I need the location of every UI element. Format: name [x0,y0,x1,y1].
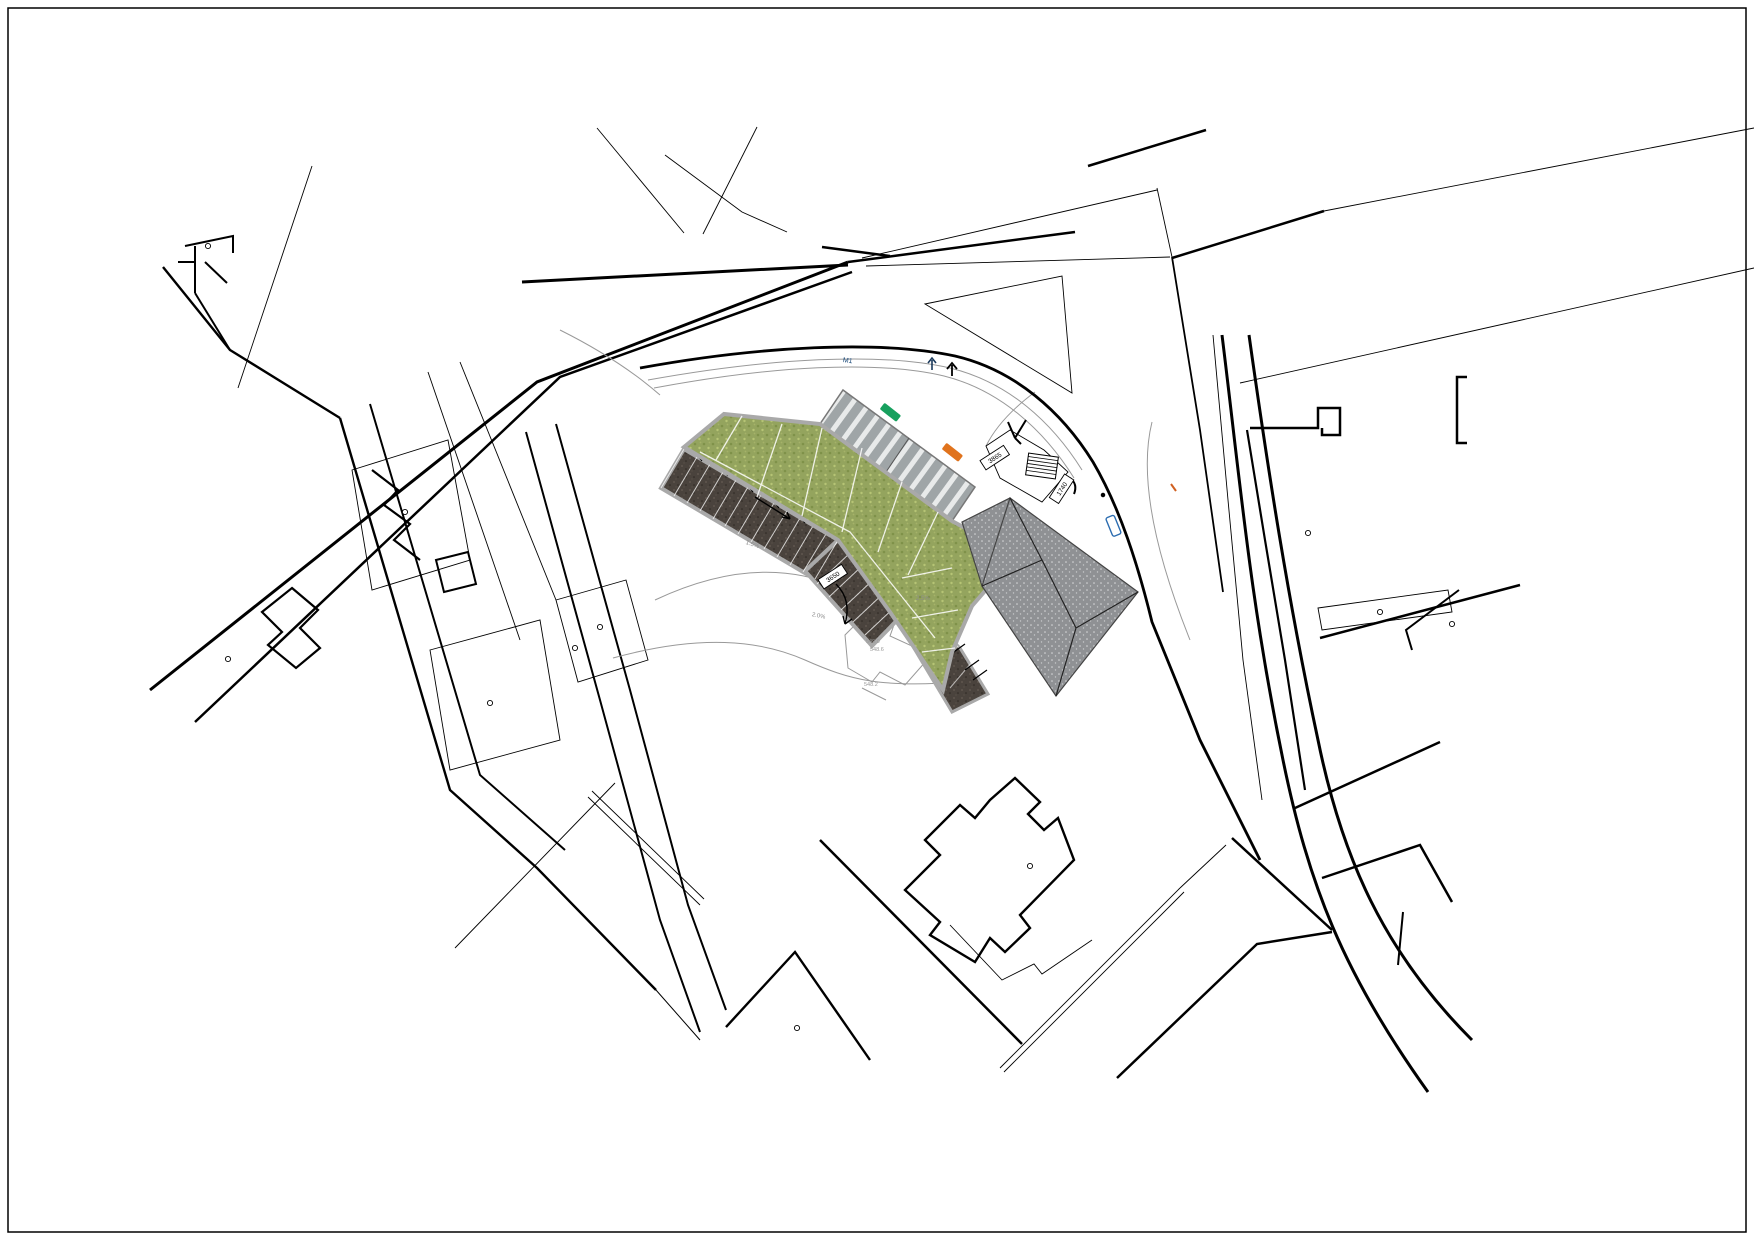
parcel-line [238,166,312,388]
survey-point [572,645,577,650]
site-plan-sheet: 3865 1740 3650 M1 1.5% 2.0% 2.5% 549.0 5… [0,0,1754,1240]
building-outline-stepped [905,778,1074,962]
parcel-line [428,372,520,640]
survey-point [794,1025,799,1030]
main-road-edge [1222,335,1428,1092]
road-edge [1088,130,1206,166]
survey-point [1027,863,1032,868]
site-plan-core: 3865 1740 3650 M1 1.5% 2.0% 2.5% 549.0 5… [640,347,1260,860]
road-edge [1320,585,1520,638]
parcel-line [950,925,1092,980]
parcel-outline [430,620,560,770]
road-edge [1172,211,1324,258]
orange-tick [1171,484,1176,491]
survey-point [402,509,407,514]
path-edge [1000,888,1180,1068]
parcel-line [866,257,1170,266]
boundary-line [1406,590,1459,650]
building-outline [262,588,320,668]
survey-point [1449,621,1454,626]
parcel-line [460,362,556,600]
bracket-symbol [1457,377,1467,443]
survey-point [597,624,602,629]
road-network [150,130,1520,1092]
parcel-line [703,127,757,234]
house-note: 549.0 [866,639,880,645]
road-edge [848,232,1075,262]
contour [1147,422,1190,640]
point-marker [1101,493,1105,497]
survey-point [205,243,210,248]
road-median [822,247,890,256]
road-edge [1117,932,1332,1078]
parcel-line [1180,845,1226,888]
survey-point [225,656,230,661]
parcel-line [1324,128,1754,211]
buildings [178,236,1340,1060]
traffic-island-parcel [925,276,1072,393]
survey-point [1377,609,1382,614]
road-edge [163,267,340,418]
boundary-line [1172,257,1223,592]
new-building-roof [962,498,1138,696]
survey-points [205,243,1454,1030]
boundary-line [820,840,1022,1044]
contour [613,642,960,684]
house-note: 548.6 [870,647,884,653]
survey-point [1305,530,1310,535]
parcel-line [862,190,1157,258]
road-mark-label: M1 [842,357,853,365]
building-cluster-northwest [178,236,233,350]
road-branch [1295,742,1440,808]
contour [862,688,886,700]
car-marker-deck-orange [942,443,963,462]
parcel-line [665,155,787,232]
parcel-outline [556,580,648,682]
street-edge [526,432,700,1032]
grade-label: 2.0% [811,612,826,621]
building-outline [205,262,227,283]
survey-point [487,700,492,705]
building-outline [195,293,230,350]
house-note: 548.2 [864,682,878,688]
parcel-line [592,791,704,899]
path-edge [1004,892,1184,1072]
parcel-lines [238,127,1754,1128]
stairs-icon [1026,453,1059,479]
building-outline [436,552,476,592]
parcel-line [1240,268,1754,383]
parcel-line [597,128,684,233]
site-plan-drawing: 3865 1740 3650 M1 1.5% 2.0% 2.5% 549.0 5… [0,0,1754,1240]
road-branch [1322,845,1452,902]
grade-label: 2.5% [916,596,930,602]
parcel-line [1157,188,1172,257]
building-outline-chevron [726,952,870,1060]
main-road-edge [1249,335,1472,1040]
